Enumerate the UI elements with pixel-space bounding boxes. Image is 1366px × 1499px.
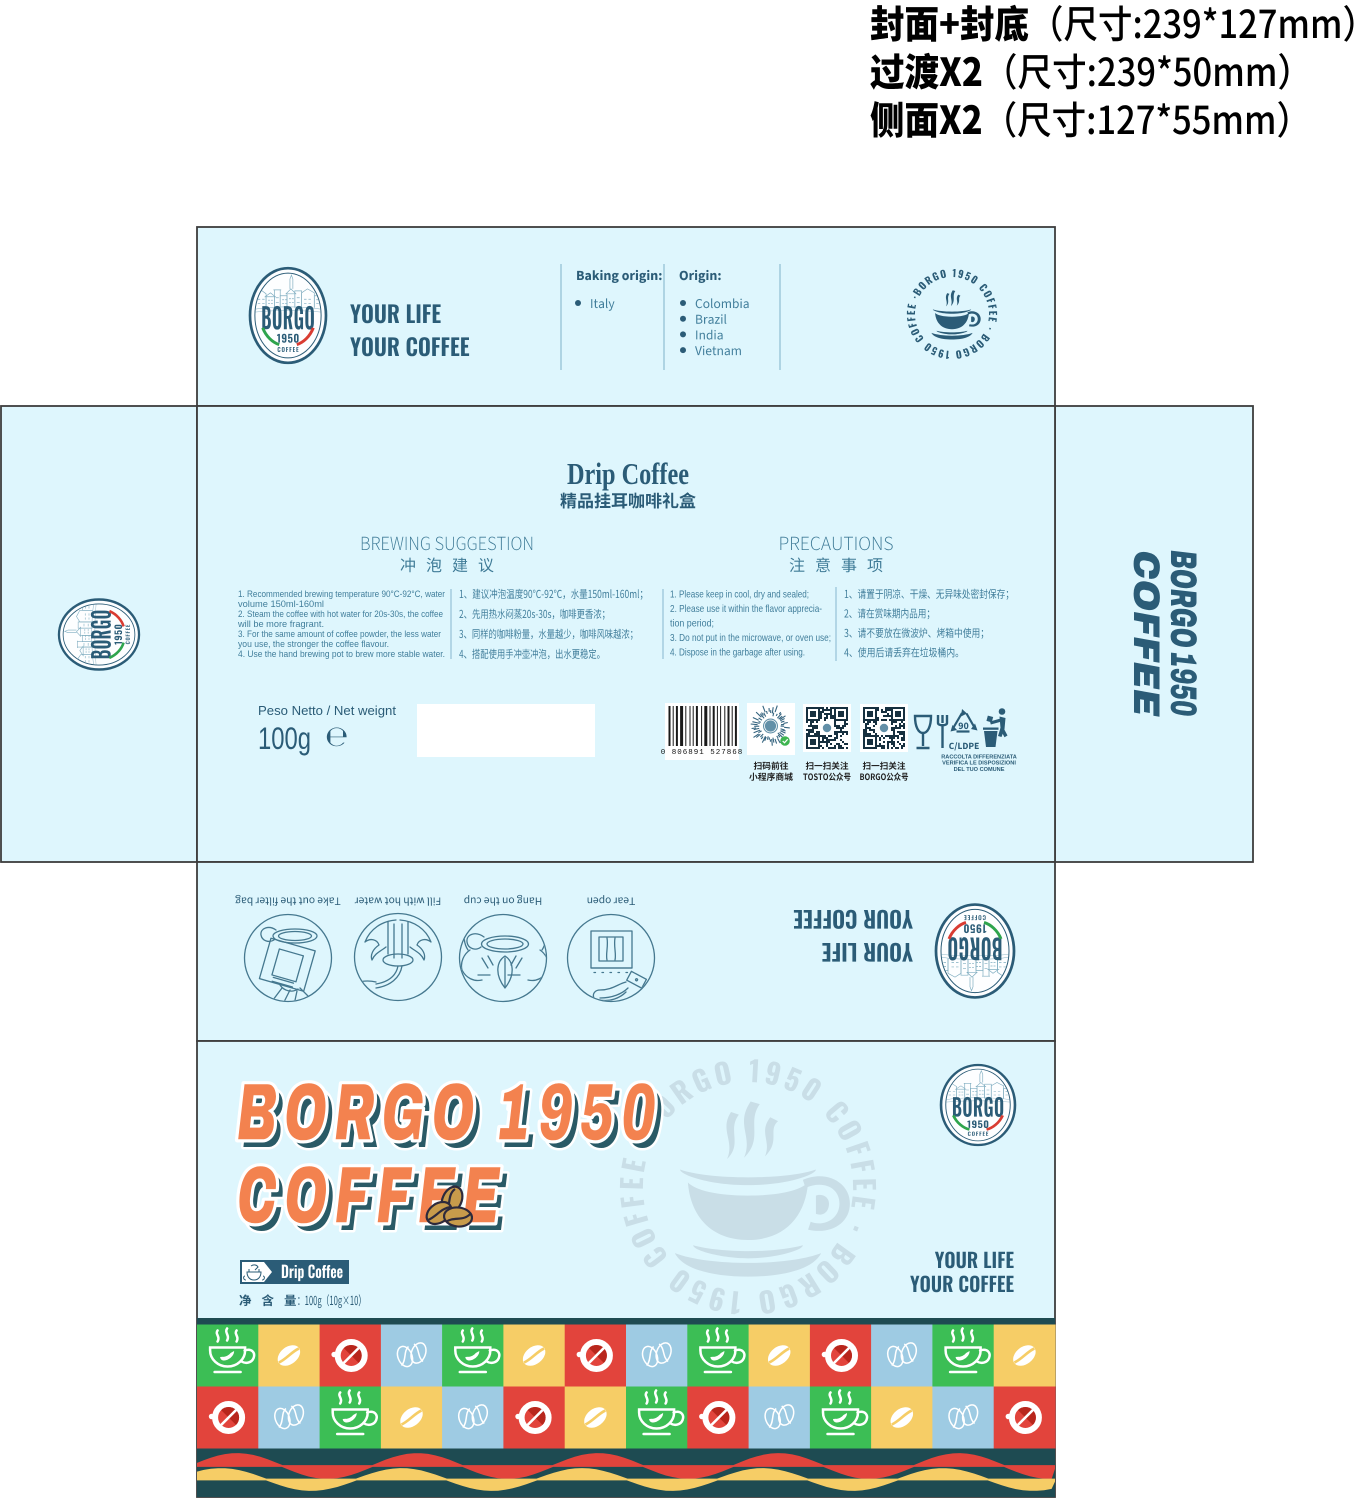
svg-text:2. Please use it within the fl: 2. Please use it within the flavor appre… (670, 603, 822, 615)
svg-text:100g: 100g (258, 720, 311, 756)
svg-text:tion period;: tion period; (670, 618, 714, 630)
svg-text:3. Do not put in the microwave: 3. Do not put in the microwave, or oven … (670, 632, 831, 644)
svg-text:DEL TUO COMUNE: DEL TUO COMUNE (954, 767, 1005, 773)
svg-text:Peso Netto / Net weignt: Peso Netto / Net weignt (258, 704, 397, 718)
svg-text:RACCOLTA DIFFERENZIATA: RACCOLTA DIFFERENZIATA (941, 755, 1017, 761)
svg-text:VERIFICA LE DISPOSIZIONI: VERIFICA LE DISPOSIZIONI (942, 761, 1016, 767)
svg-text:Drip Coffee: Drip Coffee (567, 456, 689, 491)
svg-text:0 806891 527868: 0 806891 527868 (661, 749, 744, 757)
svg-text:4. Dispose in the garbage afte: 4. Dispose in the garbage after using. (670, 647, 805, 659)
svg-text:1. Please keep in cool, dry an: 1. Please keep in cool, dry and sealed; (670, 589, 809, 601)
svg-text:4. Use the hand brewing pot to: 4. Use the hand brewing pot to brew more… (238, 649, 445, 660)
